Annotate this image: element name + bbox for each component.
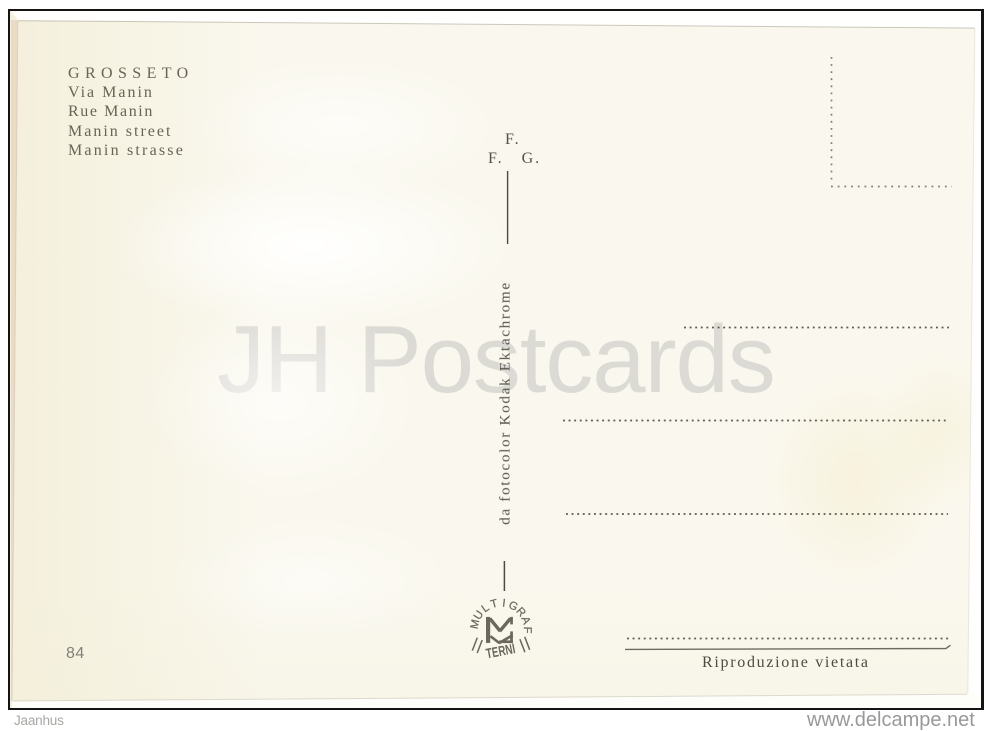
svg-text:TERNI: TERNI xyxy=(485,640,517,661)
svg-text:F: F xyxy=(521,626,533,633)
svg-text:T: T xyxy=(489,598,499,611)
svg-text:I: I xyxy=(502,598,506,610)
